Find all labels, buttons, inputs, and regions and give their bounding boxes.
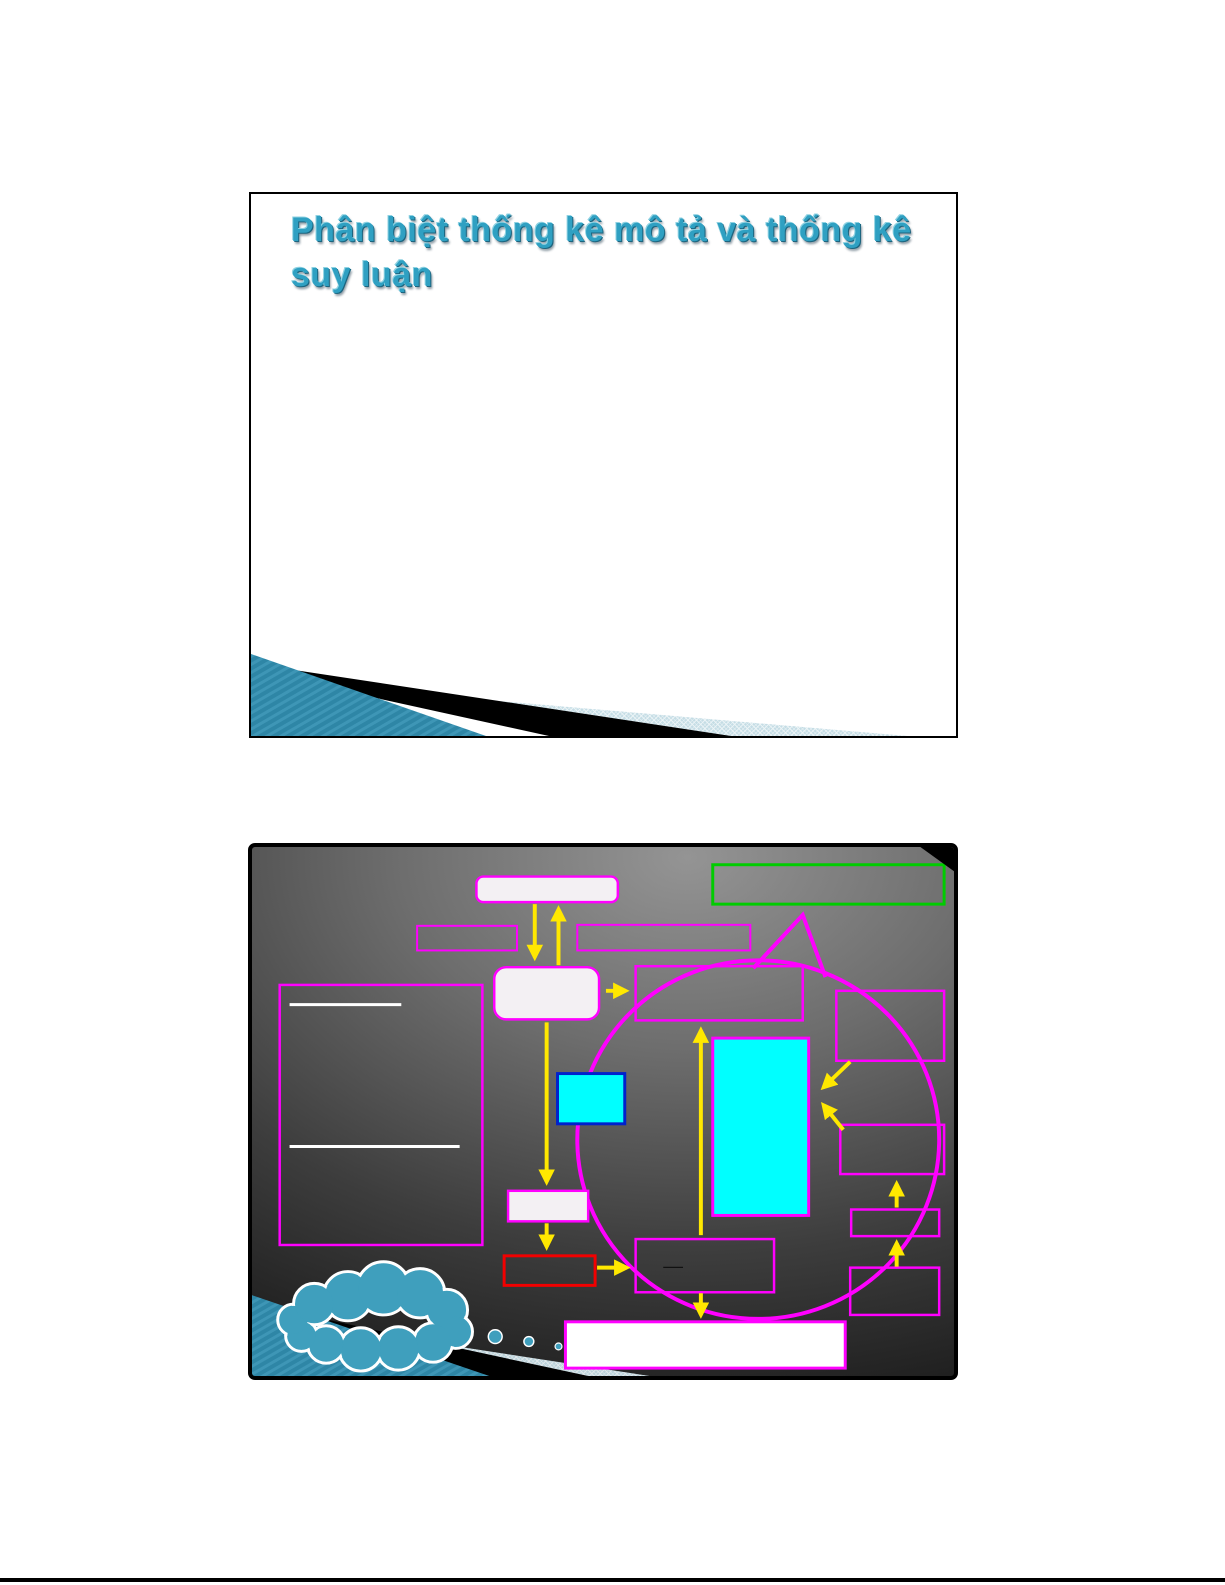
box-right-of-center	[636, 966, 803, 1020]
bottom-center-box	[636, 1239, 774, 1292]
thought-dot-small	[555, 1343, 562, 1350]
thought-cloud	[278, 1262, 562, 1371]
step-box-white	[508, 1191, 588, 1222]
arrow-diagonal-to-cyan-2	[823, 1105, 843, 1130]
slide1-footer-ribbon	[251, 194, 956, 736]
side-box-right	[577, 925, 750, 951]
handout-page: Phân biệt thống kê mô tả và thống kê suy…	[0, 0, 1225, 1585]
small-cyan-box	[558, 1074, 625, 1124]
center-process-box	[494, 967, 599, 1019]
thought-dot-large	[488, 1330, 502, 1344]
red-box	[504, 1256, 595, 1286]
arrow-diagonal-to-cyan-1	[823, 1062, 850, 1088]
bottom-center-box-dash: —	[663, 1256, 683, 1278]
statistics-flow-diagram: —	[252, 847, 954, 1376]
right-box-2	[840, 1125, 944, 1174]
top-box	[476, 877, 617, 903]
result-box-white	[565, 1322, 845, 1368]
page-bottom-rule	[0, 1578, 1225, 1582]
right-box-3	[851, 1210, 939, 1237]
thought-dot-medium	[524, 1337, 534, 1347]
tall-cyan-box	[713, 1038, 809, 1215]
right-box-1	[836, 991, 944, 1061]
notes-box-left	[280, 985, 483, 1245]
side-box-left	[417, 926, 517, 951]
right-box-4	[850, 1268, 939, 1315]
green-box-top-right	[713, 865, 944, 904]
slide-2: —	[248, 843, 958, 1380]
slide-1: Phân biệt thống kê mô tả và thống kê suy…	[249, 192, 958, 738]
